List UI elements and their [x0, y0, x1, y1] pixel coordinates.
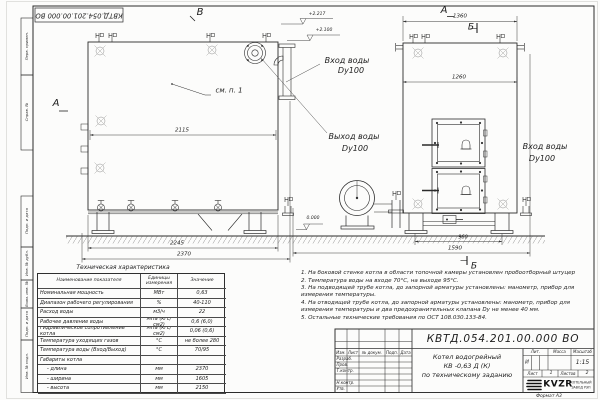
listov-value: 2 [586, 371, 589, 376]
product-name-line1: Котел водогрейный [433, 354, 501, 361]
spec-row-value: 40-110 [178, 299, 226, 309]
burner-duct [389, 191, 404, 228]
callout-leader [171, 83, 211, 95]
inlet-water-dn-mid: Dy100 [338, 67, 364, 75]
side-view [81, 33, 295, 234]
spec-row-name: Расход воды [38, 308, 141, 318]
row-tkontr: Т.контр. [337, 369, 354, 373]
product-name-line3: по техническому заданию [422, 372, 512, 379]
spec-header-value: Значение [178, 274, 226, 289]
spec-table-title: Техническая характеристика [76, 265, 169, 271]
org-name-line2: ЗАВОД РЭП [572, 386, 591, 389]
section-label-b-top: Б [468, 24, 474, 33]
note-item: 1. На боковой стенке котла в области топ… [301, 270, 592, 277]
note-item: 4. На отводящей трубе котла, до запорной… [301, 300, 592, 314]
view-label-a-front: А [441, 6, 448, 16]
dim-2115: 2115 [175, 128, 189, 134]
spec-table: Наименование показателя Единицы измерени… [37, 273, 225, 393]
margin-label-vzam-inv: Взам. инв. № [25, 281, 29, 307]
spec-row-name: - ширина [38, 375, 141, 385]
col-doc: № докум. [362, 351, 382, 355]
fan-assembly [340, 181, 393, 230]
lit-value: И [525, 360, 529, 365]
spec-row-unit: мм [141, 384, 178, 394]
col-list: Лист [348, 351, 358, 355]
spec-row-name: Гидравлическое сопротивление котла [38, 327, 141, 337]
spec-row-value: 0,6 (6,0) [178, 318, 226, 328]
margin-label-inv-dubl: Инв. № дубл. [25, 250, 29, 276]
spec-row-name: Температура уходящих газов [38, 337, 141, 347]
col-izm: Изм. [336, 351, 345, 355]
dim-1360: 1360 [453, 14, 467, 20]
margin-label-podp-data-2: Подп. и дата [25, 311, 29, 337]
outlet-flange [245, 43, 266, 64]
logo-kvzr: KVZR [543, 381, 572, 390]
row-prov: Пров. [337, 363, 349, 367]
list-value: 1 [550, 371, 553, 376]
logo-coil-icon [527, 381, 541, 390]
row-razrab: Разраб. [337, 357, 353, 361]
spec-row-value: 2150 [178, 384, 226, 394]
col-data: Дата [400, 351, 410, 355]
dim-2370: 2370 [177, 252, 191, 258]
note-item: 3. На подводящей трубе котла, до запорно… [301, 285, 592, 299]
view-label-v: В [197, 8, 204, 18]
section-marks [59, 16, 477, 265]
callout-see-note-1: см. п. 1 [215, 88, 242, 95]
spec-row-unit: % [141, 299, 178, 309]
drawing-sheet: КВТД.054.201.00.000 ВО Перв. примен. Спр… [0, 0, 600, 400]
spec-row-unit: МПа (кгс/см2) [141, 327, 178, 337]
spec-row-unit: МВт [141, 289, 178, 299]
note-item: 5. Остальные технические требования по О… [301, 315, 592, 322]
upper-door [422, 119, 487, 167]
elevation-2217: +2.217 [309, 13, 326, 18]
spec-row-unit: м3/ч [141, 308, 178, 318]
spec-row-unit: мм [141, 365, 178, 375]
outlet-water-label: Выход воды [329, 133, 380, 141]
inlet-water-label-mid: Вход воды [325, 57, 370, 65]
spec-row-unit: °С [141, 337, 178, 347]
top-left-stamp-number: КВТД.054.201.00.000 ВО [35, 12, 122, 19]
view-label-a-left: А [53, 99, 60, 109]
front-view [396, 34, 532, 234]
leader-lines [261, 58, 327, 133]
listov-label: Листов [561, 372, 576, 376]
note-item: 2. Температура воды на входе 70°С, на вы… [301, 278, 592, 285]
spec-row-value: 70/95 [178, 346, 226, 356]
ground-line [66, 236, 545, 244]
spec-row-value: 2370 [178, 365, 226, 375]
spec-row-unit: мм [141, 375, 178, 385]
list-label: Лист [527, 372, 537, 376]
row-utv: Утв. [337, 387, 345, 391]
inlet-elbow-pipe [274, 44, 295, 100]
elevation-2100: +2.100 [316, 29, 333, 34]
spec-header-name: Наименование показателя [38, 274, 141, 289]
inlet-water-dn-right: Dy100 [529, 155, 555, 163]
spec-row-value: 22 [178, 308, 226, 318]
spec-row-unit: °С [141, 346, 178, 356]
lit-label: Лит. [531, 350, 540, 354]
margin-label-perv-primen: Перв. примен. [25, 32, 29, 61]
dim-960: 960 [458, 235, 468, 240]
spec-row-value: 0,63 [178, 289, 226, 299]
spec-row-name: Диапазон рабочего регулирования [38, 299, 141, 309]
margin-label-sprav-no: Справ. № [25, 103, 29, 121]
spec-row-unit [141, 356, 178, 366]
dim-1260: 1260 [452, 75, 466, 81]
dim-1590: 1590 [448, 246, 462, 252]
title-block-doc-number: КВТД.054.201.00.000 ВО [427, 333, 580, 344]
format-label: Формат А3 [536, 394, 562, 399]
spec-row-name: Температура воды (Вход/Выход) [38, 346, 141, 356]
side-supports [88, 212, 278, 234]
org-name-line1: КОТЕЛЬНЫЙ [571, 381, 592, 384]
spec-row-value: 1605 [178, 375, 226, 385]
spec-row-name: Рабочее давление воды [38, 318, 141, 328]
outlet-water-dn: Dy100 [342, 145, 368, 153]
masshtab-value: 1:15 [576, 360, 589, 366]
spec-row-name: Габариты котла [38, 356, 141, 366]
lower-door [422, 169, 487, 214]
dim-2245: 2245 [170, 241, 184, 247]
masshtab-label: Масштаб [573, 350, 592, 354]
margin-label-podp-data-1: Подп. и дата [25, 208, 29, 234]
col-podp: Подп. [386, 351, 398, 355]
spec-row-value [178, 356, 226, 366]
inlet-water-label-right: Вход воды [523, 143, 568, 151]
row-nkontr: Н.контр. [337, 381, 355, 385]
technical-notes: 1. На боковой стенке котла в области топ… [301, 270, 592, 323]
mid-valve [283, 197, 294, 216]
product-name-line2: КВ -0,63 Д (К) [444, 363, 491, 370]
margin-label-inv-podl: Инв. № подл. [25, 353, 29, 379]
spec-row-unit: МПа (кгс/см2) [141, 318, 178, 328]
spec-header-unit: Единицы измерения [141, 274, 178, 289]
front-base [405, 213, 513, 234]
spec-row-value: не более 280 [178, 337, 226, 347]
spec-row-name: - длина [38, 365, 141, 375]
massa-label: Масса [553, 350, 566, 354]
spec-row-name: Номинальная мощность [38, 289, 141, 299]
spec-row-name: - высота [38, 384, 141, 394]
spec-row-value: 0,06 (0,6) [178, 327, 226, 337]
elevation-zero: 0.000 [307, 217, 320, 222]
